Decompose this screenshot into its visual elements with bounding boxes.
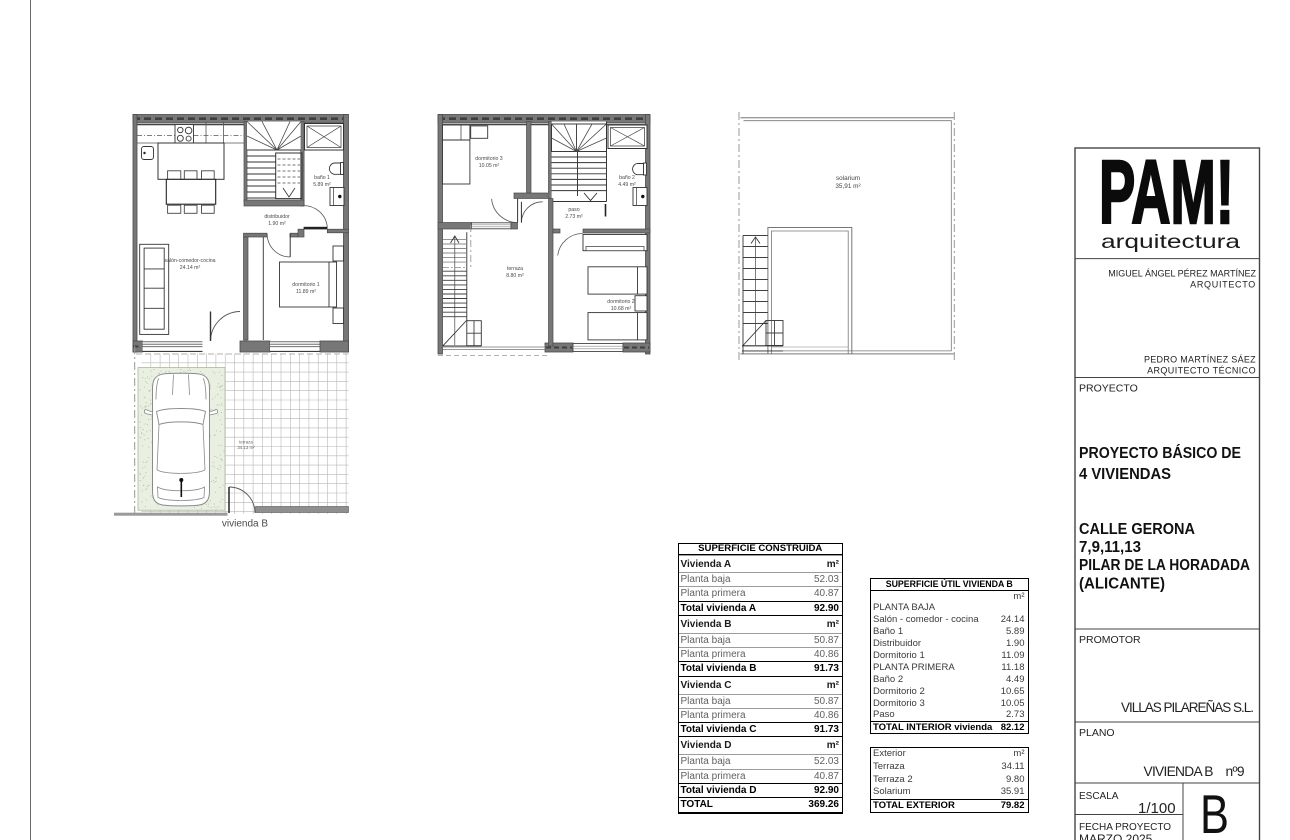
svg-text:MARZO 2025: MARZO 2025 [1079,832,1153,840]
svg-text:1.90 m²: 1.90 m² [268,221,286,227]
svg-text:ARQUITECTO TÉCNICO: ARQUITECTO TÉCNICO [1147,366,1256,376]
svg-text:34.13 m²: 34.13 m² [237,445,255,450]
svg-text:4.49 m²: 4.49 m² [618,182,636,188]
svg-text:ESCALA: ESCALA [1079,791,1119,802]
svg-text:PEDRO MARTÍNEZ SÁEZ: PEDRO MARTÍNEZ SÁEZ [1144,355,1256,365]
svg-text:B: B [1200,783,1229,840]
svg-text:10.68 m²: 10.68 m² [611,306,632,312]
svg-text:dormitorio 1: dormitorio 1 [292,282,320,288]
svg-text:VILLAS PILAREÑAS S.L.: VILLAS PILAREÑAS S.L. [1121,700,1254,715]
svg-text:11.89 m²: 11.89 m² [296,289,316,295]
svg-text:(ALICANTE): (ALICANTE) [1079,576,1165,593]
svg-text:8.80 m²: 8.80 m² [506,273,524,279]
svg-text:PLANO: PLANO [1079,727,1115,739]
svg-text:PAM!: PAM! [1099,143,1234,243]
svg-text:PROMOTOR: PROMOTOR [1079,634,1141,646]
svg-text:MIGUEL ÁNGEL PÉREZ MARTÍNEZ: MIGUEL ÁNGEL PÉREZ MARTÍNEZ [1108,269,1256,279]
svg-text:baño 1: baño 1 [314,175,330,181]
svg-text:CALLE GERONA: CALLE GERONA [1079,521,1195,538]
svg-text:terraza: terraza [239,440,253,445]
svg-text:ARQUITECTO: ARQUITECTO [1190,280,1256,290]
svg-text:arquitectura: arquitectura [1101,231,1240,253]
svg-text:nº9: nº9 [1226,764,1245,779]
svg-text:PROYECTO BÁSICO DE: PROYECTO BÁSICO DE [1079,445,1241,462]
svg-text:PROYECTO: PROYECTO [1079,383,1138,395]
svg-text:5.89 m²: 5.89 m² [313,182,331,188]
svg-text:VIVIENDA B: VIVIENDA B [1144,764,1214,779]
svg-text:dormitorio 2: dormitorio 2 [607,299,635,305]
svg-text:35,91 m²: 35,91 m² [835,183,860,190]
svg-text:salón-comedor-cocina: salón-comedor-cocina [164,258,215,264]
svg-text:7,9,11,13: 7,9,11,13 [1079,539,1141,556]
svg-text:dormitorio 3: dormitorio 3 [475,156,503,162]
svg-text:4 VIVIENDAS: 4 VIVIENDAS [1079,466,1171,483]
svg-text:10.05 m²: 10.05 m² [479,163,500,169]
svg-text:vivienda B: vivienda B [222,519,268,530]
svg-text:terraza: terraza [507,266,523,272]
svg-text:PILAR DE LA HORADADA: PILAR DE LA HORADADA [1079,557,1250,574]
svg-text:24.14 m²: 24.14 m² [180,265,201,271]
svg-text:distribuidor: distribuidor [264,214,290,220]
svg-text:baño 2: baño 2 [619,175,635,181]
svg-text:2.73 m²: 2.73 m² [565,214,583,220]
svg-text:solarium: solarium [836,175,860,182]
svg-text:paso: paso [568,207,579,213]
